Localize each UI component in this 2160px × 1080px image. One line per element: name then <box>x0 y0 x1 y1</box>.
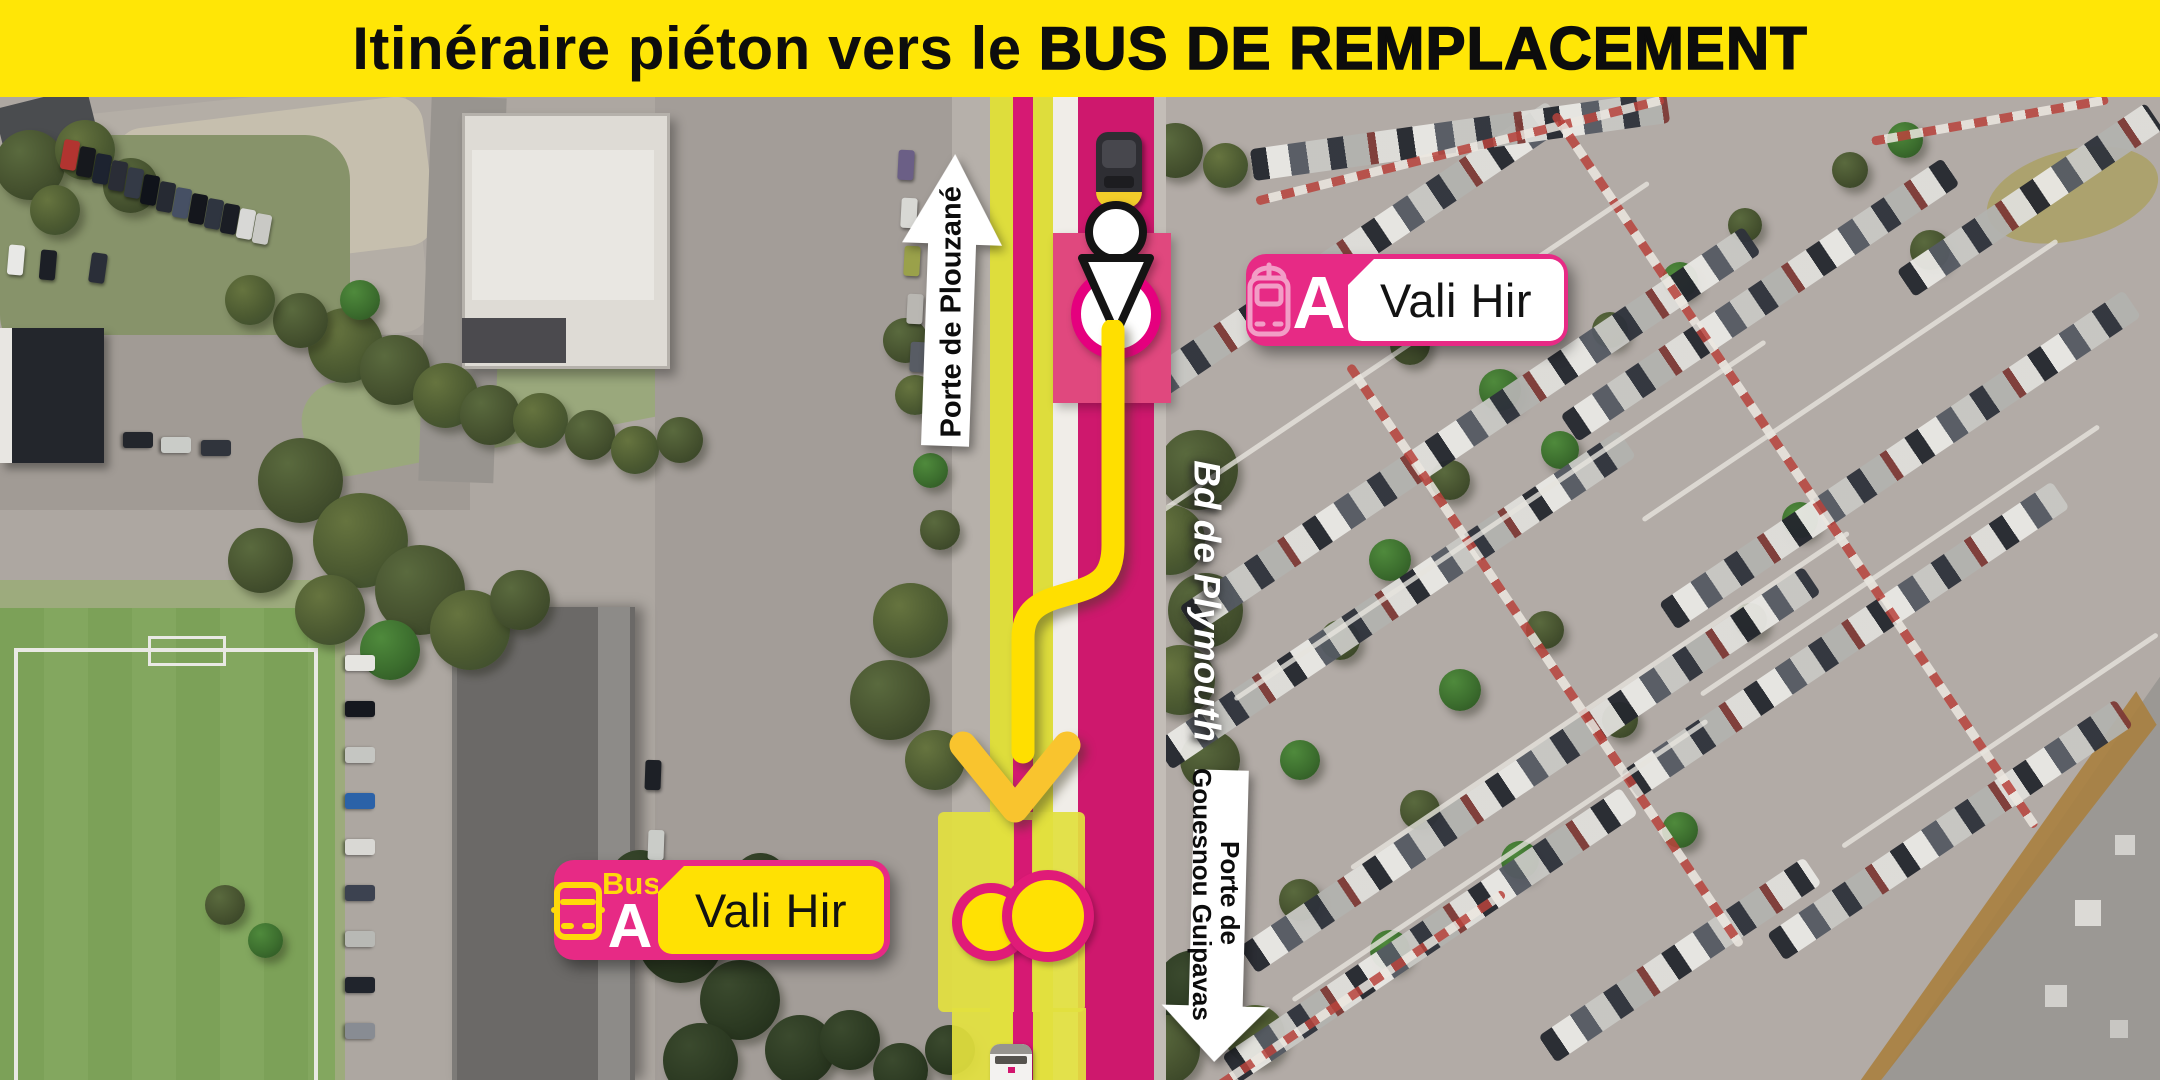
mall-vent <box>2115 835 2135 855</box>
parked-car <box>345 885 375 901</box>
tree <box>273 293 328 348</box>
dark-building-left <box>0 328 104 463</box>
mall-building <box>1820 600 2160 1080</box>
goal-box-lines <box>148 636 226 666</box>
mall-vent <box>2075 900 2101 926</box>
tree <box>1280 740 1320 780</box>
parked-car <box>345 701 375 717</box>
porte-de-gouesnou-label-line1: Porte de <box>1216 768 1244 1018</box>
tree <box>513 393 568 448</box>
tree <box>360 620 420 680</box>
warehouse-dark-wing <box>462 318 566 363</box>
parked-car <box>161 437 191 453</box>
porte-de-gouesnou-label-line2: Gouesnou Guipavas <box>1188 768 1216 1018</box>
tree <box>611 426 659 474</box>
mall-vent <box>2045 985 2067 1007</box>
bus-zone-extension-right <box>1040 1008 1086 1080</box>
bus-line-letter: A <box>602 896 658 958</box>
parked-car <box>7 244 26 275</box>
bus-stop-label: Bus A Vali Hir <box>554 860 890 960</box>
tree <box>873 583 948 658</box>
tree <box>1203 143 1248 188</box>
parked-car <box>644 760 661 791</box>
tree <box>228 528 293 593</box>
bus-roof <box>990 1044 1032 1054</box>
tree <box>248 923 283 958</box>
mall-vent <box>2110 1020 2128 1038</box>
tree <box>30 185 80 235</box>
bus-windshield <box>995 1056 1027 1064</box>
bus-stop-circle <box>1002 870 1094 962</box>
mall-roof <box>1820 600 2160 1080</box>
porte-de-gouesnou-label: Porte de Gouesnou Guipavas <box>1188 768 1244 1018</box>
parked-car <box>345 793 375 809</box>
bus-detail <box>1008 1067 1015 1073</box>
tram-label-corner-cut <box>1348 259 1374 285</box>
tree <box>850 660 930 740</box>
porte-de-plouzane-label: Porte de Plouzané <box>936 213 966 438</box>
page-title: Itinéraire piéton vers le BUS DE REMPLAC… <box>352 14 1808 83</box>
tree <box>1439 669 1481 711</box>
tram-windshield <box>1104 176 1134 188</box>
tree <box>820 1010 880 1070</box>
tree <box>565 410 615 460</box>
bus-stop-name: Vali Hir <box>695 883 847 938</box>
tram-icon <box>1244 260 1294 340</box>
replacement-bus-map-poster: Porte de Plouzané Bd de Plymouth Porte d… <box>0 0 2160 1080</box>
parked-car <box>345 747 375 763</box>
tram-line-letter: A <box>1290 266 1348 340</box>
parked-car <box>345 1023 375 1039</box>
tree <box>205 885 245 925</box>
bus-vehicle <box>990 1044 1032 1080</box>
tree <box>295 575 365 645</box>
bus-stop-name-box: Vali Hir <box>658 866 884 954</box>
tree <box>340 280 380 320</box>
parked-car <box>345 931 375 947</box>
tram-stop-label: A Vali Hir <box>1246 254 1568 346</box>
street-name-label: Bd de Plymouth <box>1186 435 1228 768</box>
parked-car <box>201 440 231 456</box>
warehouse-roof-detail <box>472 150 654 300</box>
tram-roof-equipment <box>1102 140 1136 168</box>
parked-car <box>345 655 375 671</box>
parked-car <box>123 432 153 448</box>
field-boundary-lines <box>14 648 318 1080</box>
bus-label-corner-cut <box>658 866 684 892</box>
tram-stop-name-box: Vali Hir <box>1348 259 1564 341</box>
tree <box>1832 152 1868 188</box>
parked-car <box>345 839 375 855</box>
title-emphasis: BUS DE REMPLACEMENT <box>1039 15 1808 82</box>
parked-car <box>345 977 375 993</box>
tree <box>657 417 703 463</box>
title-prefix: Itinéraire piéton vers le <box>352 15 1039 82</box>
bus-icon <box>550 880 606 944</box>
tram-stop-name: Vali Hir <box>1380 273 1532 328</box>
parked-car <box>39 249 58 280</box>
tree <box>490 570 550 630</box>
title-banner: Itinéraire piéton vers le BUS DE REMPLAC… <box>0 0 2160 97</box>
parked-car <box>647 830 664 861</box>
long-building-right-strip <box>598 607 630 1080</box>
tree <box>225 275 275 325</box>
tree <box>460 385 520 445</box>
